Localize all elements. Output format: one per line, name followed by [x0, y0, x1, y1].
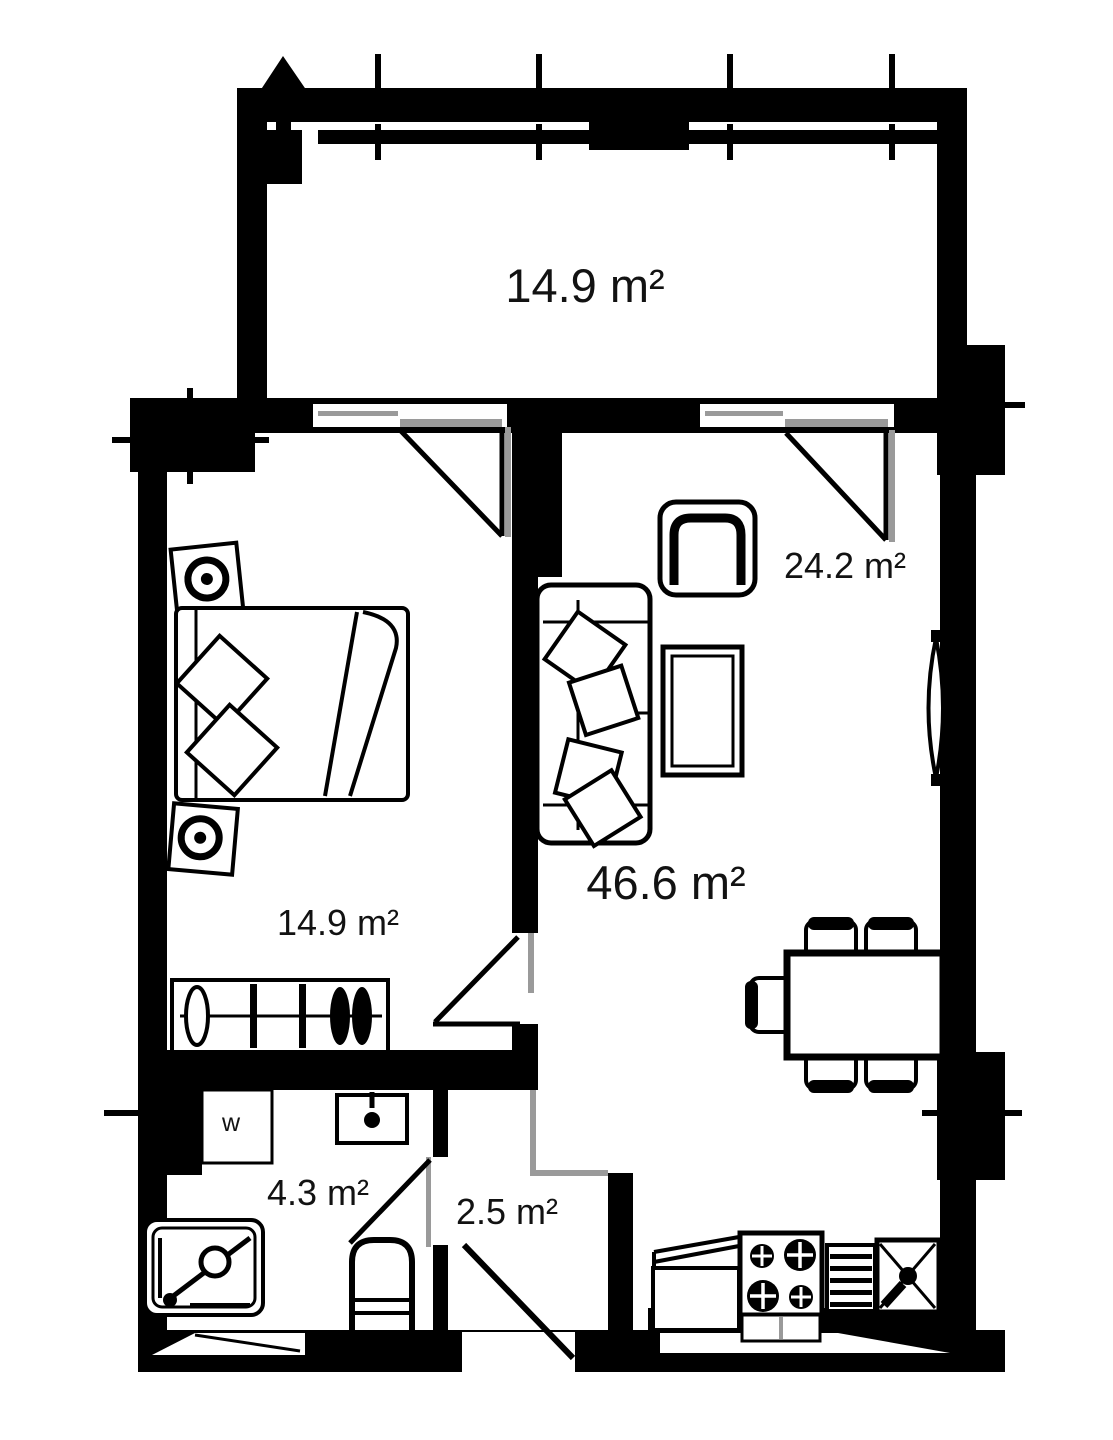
wardrobe-icon: [172, 980, 388, 1052]
bathroom-area-label: 4.3 m²: [267, 1172, 369, 1213]
shower-icon: [145, 1220, 263, 1315]
balcony-area-label: 14.9 m²: [505, 259, 664, 312]
dish-rack-icon: [827, 1245, 875, 1311]
nightstand-icon: [168, 803, 238, 874]
washer-label: w: [221, 1109, 241, 1137]
floor-plan-drawing: 14.9 m² 14.9 m² 46.6 m² 24.2 m² 4.3 m² 2…: [0, 0, 1113, 1440]
stove-icon: [740, 1233, 822, 1341]
armchair-icon: [660, 502, 755, 595]
bed-icon: [176, 608, 408, 800]
entrance-door: [462, 1245, 575, 1372]
bathroom-sink-icon: [337, 1092, 407, 1143]
dining-table-icon: [787, 953, 943, 1057]
nightstand-icon: [171, 543, 244, 616]
coffee-table-icon: [663, 647, 742, 775]
bedroom-area-label: 14.9 m²: [277, 902, 399, 943]
sofa-icon: [537, 585, 650, 846]
balcony-door-bedroom: [400, 427, 511, 537]
balcony-window-living: [700, 404, 894, 427]
balcony-window-bedroom: [313, 404, 507, 427]
living-room-area-label: 46.6 m²: [586, 856, 745, 909]
balcony-door-living: [786, 430, 895, 542]
floor-plan: 14.9 m² 14.9 m² 46.6 m² 24.2 m² 4.3 m² 2…: [0, 0, 1113, 1440]
hallway-area-label: 2.5 m²: [456, 1191, 558, 1232]
kitchen-sink-icon: [877, 1240, 939, 1312]
living-zone-area-label: 24.2 m²: [784, 545, 906, 586]
toilet-icon: [352, 1240, 412, 1330]
hall-boundary-lines: [530, 1090, 608, 1173]
bedroom-door: [433, 933, 534, 1024]
